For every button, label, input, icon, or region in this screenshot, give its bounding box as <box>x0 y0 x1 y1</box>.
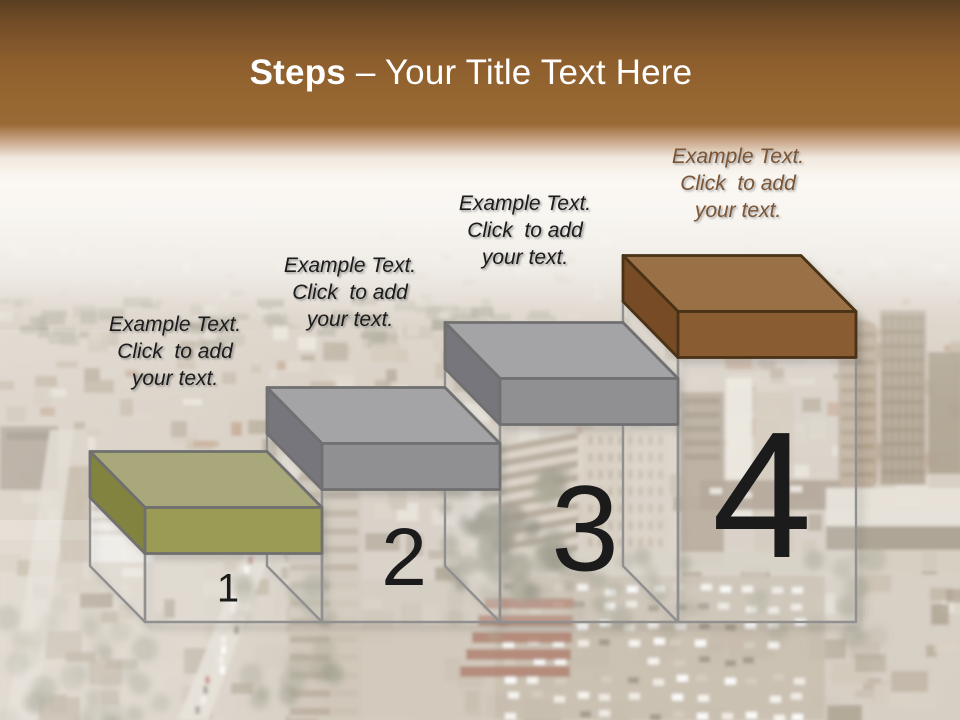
svg-text:2: 2 <box>381 512 427 603</box>
svg-text:1: 1 <box>217 567 239 611</box>
svg-text:3: 3 <box>551 461 619 597</box>
svg-text:4: 4 <box>712 395 812 596</box>
